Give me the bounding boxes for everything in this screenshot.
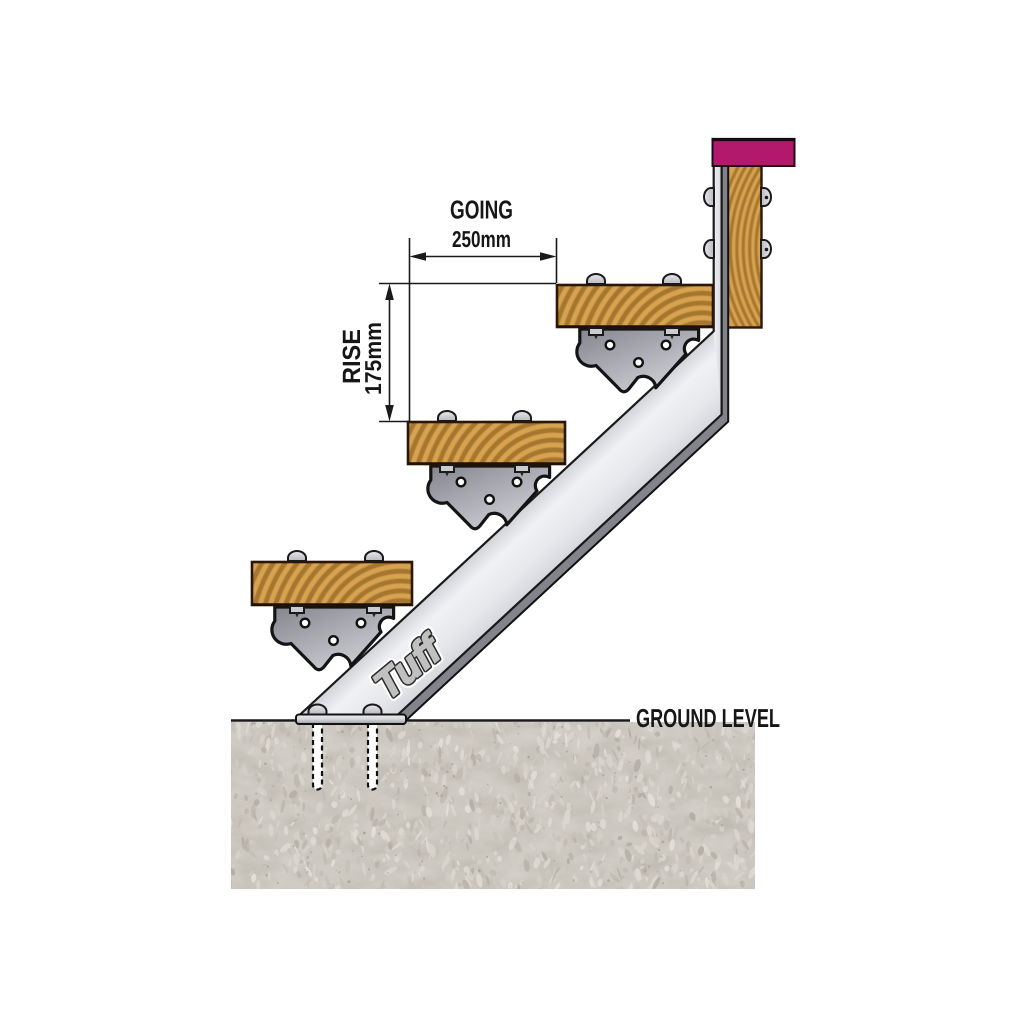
svg-text:GOING: GOING [450, 195, 513, 225]
svg-text:250mm: 250mm [452, 226, 511, 252]
svg-text:175mm: 175mm [360, 322, 386, 395]
svg-text:GROUND LEVEL: GROUND LEVEL [636, 703, 780, 733]
